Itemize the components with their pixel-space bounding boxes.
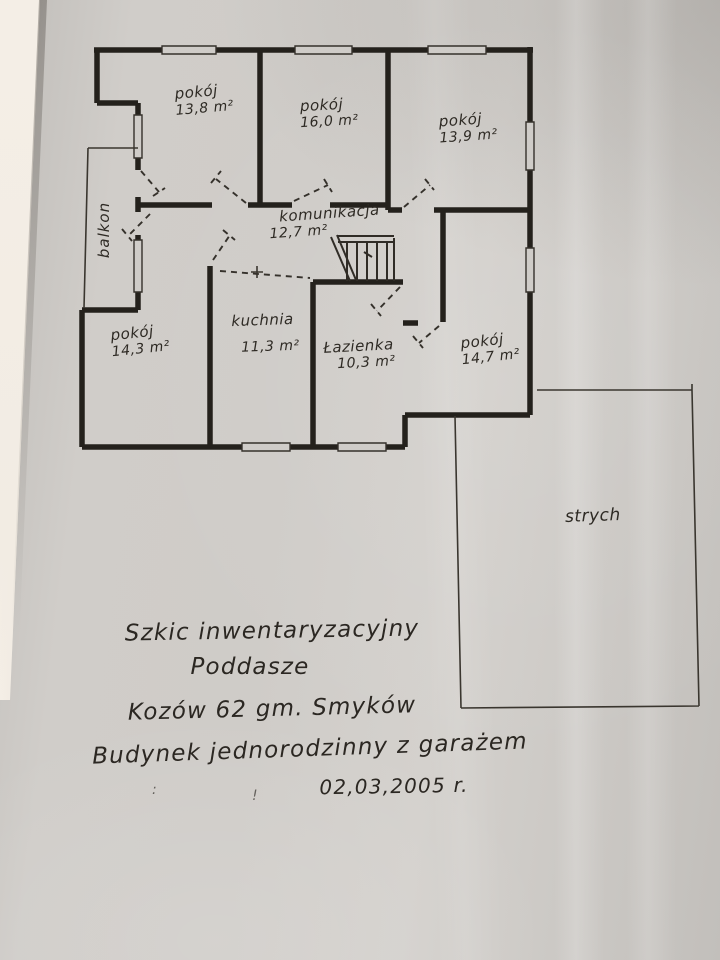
- balcony-label: balkon: [95, 202, 113, 258]
- room-area: 10,3 m²: [337, 353, 396, 372]
- room-area: 16,0 m²: [300, 112, 359, 131]
- ink-smudge: :: [152, 782, 157, 798]
- room-label-pokoj-13-8: pokój 13,8 m²: [159, 81, 234, 121]
- floor-plan-drawing: [0, 0, 720, 960]
- caption-subtitle: Poddasze: [190, 654, 309, 680]
- photo-of-floor-plan-sketch: pokój 13,8 m² pokój 16,0 m² pokój 13,9 m…: [0, 0, 720, 960]
- staircase: [331, 235, 394, 281]
- room-name: kuchnia: [231, 311, 294, 330]
- caption-title: Szkic inwentaryzacyjny: [125, 615, 420, 646]
- room-label-komunikacja: komunikacja 12,7 m²: [279, 202, 382, 242]
- caption-date: 02,03,2005 r.: [319, 773, 469, 800]
- attic-label: strych: [565, 505, 621, 527]
- room-label-lazienka: Łazienka 10,3 m²: [322, 336, 396, 373]
- room-label-kuchnia: kuchnia 11,3 m²: [226, 311, 300, 357]
- ink-smudge: !: [252, 788, 258, 804]
- room-label-pokoj-13-9: pokój 13,9 m²: [424, 110, 499, 148]
- room-area: 11,3 m²: [241, 338, 300, 356]
- room-label-pokoj-16-0: pokój 16,0 m²: [285, 95, 359, 132]
